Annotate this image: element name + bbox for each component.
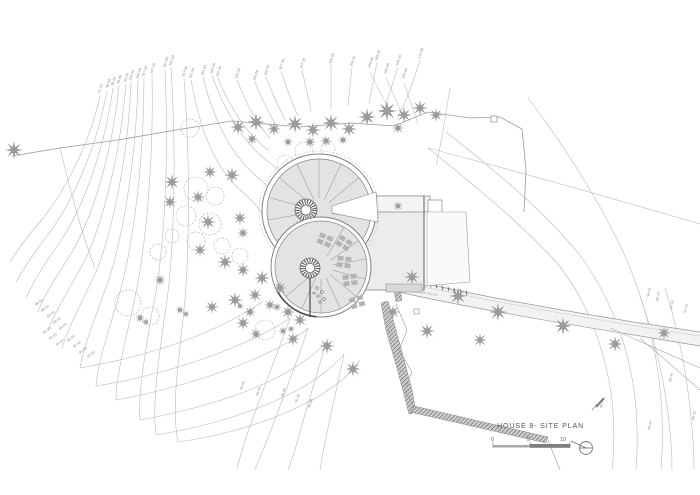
scale-mark-0: 0	[491, 437, 494, 443]
contour-elevation-label: 93.00	[78, 346, 88, 355]
title-block: HOUSE 8- SITE PLAN 0 5 10	[491, 398, 604, 455]
contour-elevation-label: 109.50	[395, 54, 402, 66]
lower-stair-inner	[305, 263, 314, 272]
contour-elevation-label: 100.00	[383, 62, 390, 74]
contour-elevation-label: 106.00	[252, 69, 259, 81]
contour-elevation-label: 99.50	[691, 410, 697, 420]
contour-elevation-label: 104.00	[200, 64, 207, 76]
contour-elevation-label: 100.00	[128, 69, 135, 81]
upper-stair-inner	[301, 205, 311, 215]
contour-elevation-label: 95.50	[294, 393, 301, 403]
contour-elevation-label: 97.00	[669, 299, 675, 309]
contour-elevation-label: 96.50	[655, 291, 661, 301]
drawing-title: HOUSE 8- SITE PLAN	[497, 421, 584, 430]
contour-elevation-label: 108.50	[349, 55, 356, 67]
contour-elevation-label: 103.00	[181, 65, 188, 77]
contour-elevation-label: 91.00	[48, 332, 58, 341]
boundary-marker	[491, 116, 497, 122]
contour-elevation-label: 101.50	[149, 62, 156, 74]
contour-elevation-label: 92.50	[72, 340, 82, 349]
contour-elevation-label: 97.50	[683, 303, 689, 313]
contour-elevation-label: 100.00	[367, 56, 374, 68]
site-plan-drawing: ACCESS ROAD	[0, 0, 700, 495]
contour-elevation-label: 102.50	[168, 54, 175, 66]
contour-elevation-label: 94.00	[239, 380, 246, 390]
contour-elevation-label: 98.50	[668, 372, 674, 382]
contour-elevation-label: 105.00	[215, 65, 222, 77]
contour-elevation-label: 90.50	[42, 326, 52, 335]
contour-elevation-label: 101.00	[141, 65, 148, 77]
contour-elevation-label: 96.00	[307, 398, 314, 408]
contour-elevation-label: 94.50	[255, 386, 262, 396]
contour-elevation-label: 97.50	[97, 83, 104, 93]
contour-elevation-label: 99.00	[116, 74, 123, 84]
scale-mark-10: 10	[560, 437, 566, 443]
contour-elevation-label: 106.50	[263, 64, 270, 76]
scale-mark-5: 5	[527, 437, 530, 443]
north-arrow-icon	[571, 441, 593, 455]
site-plan-page: ACCESS ROAD	[0, 0, 700, 495]
contour-elevation-label: 99.00	[647, 420, 653, 430]
contour-elevation-label: 110.00	[417, 47, 424, 59]
manhole-marker	[414, 309, 419, 314]
contour-elevation-label: 107.00	[278, 58, 285, 70]
contour-elevation-label: 88.50	[40, 304, 50, 313]
contour-elevation-label: 89.00	[46, 310, 56, 319]
contour-elevation-label: 91.50	[55, 338, 65, 347]
contour-elevation-label: 108.00	[328, 52, 335, 64]
contour-elevation-label: 109.00	[374, 49, 381, 61]
contour-elevation-label: 103.50	[188, 67, 195, 79]
access-road: ACCESS ROAD	[390, 276, 700, 390]
contour-elevation-label: 107.50	[299, 57, 306, 69]
contour-elevation-label: 105.50	[234, 67, 241, 79]
contour-elevation-label: 90.00	[58, 322, 68, 331]
contour-elevation-label: 92.00	[66, 334, 76, 343]
house-building	[259, 151, 379, 317]
contour-elevation-label: 93.50	[86, 350, 96, 359]
contour-elevation-label: 100.00	[401, 67, 408, 79]
contour-elevation-label: 96.00	[646, 287, 652, 297]
